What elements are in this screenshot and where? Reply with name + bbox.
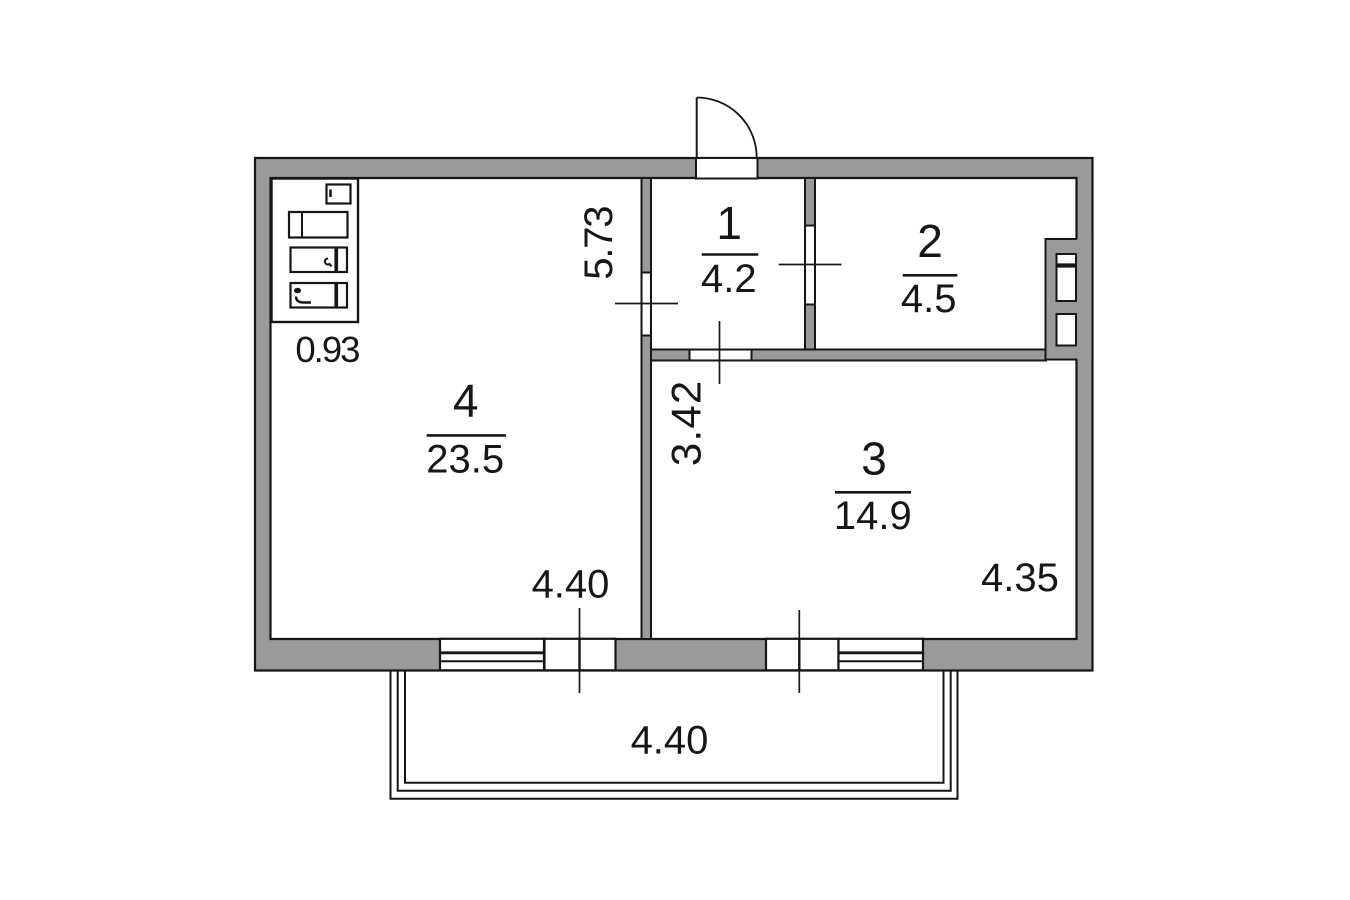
svg-text:14.9: 14.9: [834, 494, 912, 538]
svg-text:0.93: 0.93: [295, 329, 359, 370]
svg-text:2: 2: [917, 215, 943, 267]
svg-text:4: 4: [453, 374, 479, 426]
svg-text:1: 1: [716, 197, 742, 249]
svg-text:3: 3: [861, 433, 887, 485]
svg-text:23.5: 23.5: [426, 438, 504, 482]
svg-text:4.35: 4.35: [981, 556, 1059, 600]
svg-text:3.42: 3.42: [663, 380, 710, 467]
svg-text:5.73: 5.73: [577, 207, 621, 280]
svg-text:4.40: 4.40: [532, 562, 610, 606]
svg-text:4.2: 4.2: [701, 257, 757, 301]
svg-text:4.5: 4.5: [901, 277, 957, 321]
svg-text:4.40: 4.40: [631, 719, 709, 763]
